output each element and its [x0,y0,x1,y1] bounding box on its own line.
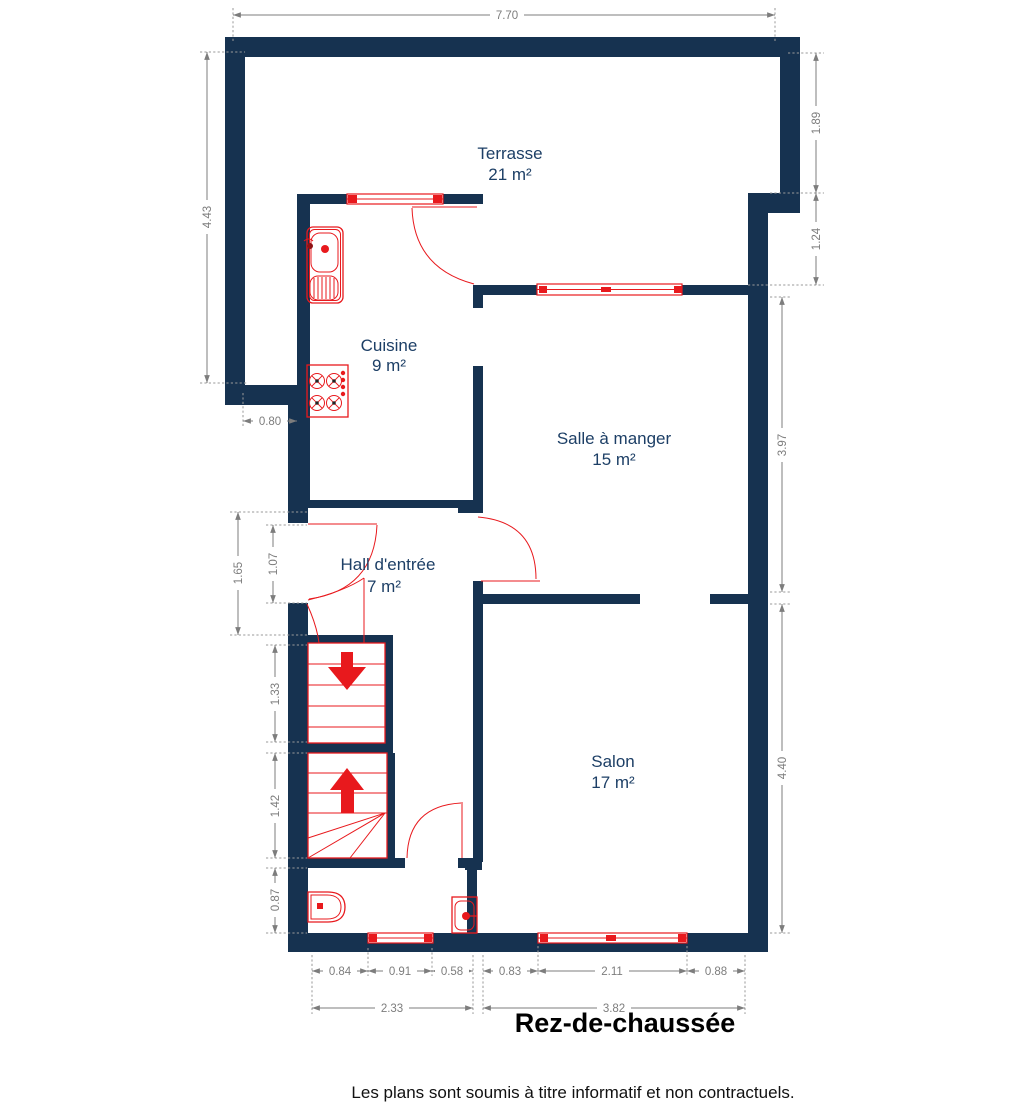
salon-window [538,933,687,943]
winder-step [308,813,385,858]
winder-step [308,813,385,838]
disclaimer-text: Les plans sont soumis à titre informatif… [351,1083,794,1102]
wall-segment [288,603,308,952]
room-label-hall: Hall d'entrée [341,555,436,574]
room-label-salon: Salon [591,752,634,771]
room-area-salle-a-manger: 15 m² [592,450,636,469]
dim-left-stairs-down: 1.33 [270,683,282,705]
wall-segment [473,285,483,308]
wall-segment [288,743,393,753]
wall-segment [473,594,483,862]
wall-segment [288,635,393,643]
floor-plan-page: 7.70 1.89 1.24 3.97 4.40 4.43 0.80 1.65 … [0,0,1024,1104]
dim-bottom-salon-left: 0.83 [499,966,521,978]
kitchen-sink-icon [304,227,343,303]
room-area-salon: 17 m² [591,773,635,792]
room-label-terrasse: Terrasse [477,144,542,163]
wall-segment [780,37,800,213]
wall-segment [473,366,483,503]
door-arc [407,803,461,858]
kitchen-window [347,194,443,204]
wall-segment [385,635,393,743]
dim-bottom-total-left: 2.33 [381,1003,403,1015]
doors [307,207,540,858]
door-arc [308,578,364,600]
room-label-salle-a-manger: Salle à manger [557,429,672,448]
floor-title: Rez-de-chaussée [515,1008,736,1038]
wall-segment [387,753,395,858]
dim-left-wc: 0.87 [270,889,282,911]
wall-segment [288,858,405,868]
dim-bottom-wc-right: 0.58 [441,966,463,978]
dim-left-stairs-up: 1.42 [270,795,282,817]
dim-bottom-salon-right: 0.88 [705,966,727,978]
winder-step [350,813,385,858]
wall-segment [288,933,768,952]
wall-segment [225,37,245,405]
wall-segment [473,594,640,604]
dim-left-hall: 1.65 [233,562,245,584]
wall-segment [710,594,748,604]
wall-segment [748,193,768,952]
wc-window [368,933,433,943]
room-area-hall: 7 m² [367,577,401,596]
dim-bottom-salon-window: 2.11 [601,966,623,978]
floor-plan-drawing: 7.70 1.89 1.24 3.97 4.40 4.43 0.80 1.65 … [0,0,1024,1104]
stove-icon [307,365,348,417]
dim-bottom-wc-window: 0.91 [389,966,411,978]
room-area-terrasse: 21 m² [488,165,532,184]
door-arc [478,517,536,579]
wall-segment [288,500,483,508]
dim-left-terrace: 4.43 [202,206,214,228]
wall-segment [225,37,800,57]
dim-right-upper: 1.89 [811,112,823,134]
dim-right-salon: 4.40 [777,757,789,779]
room-label-cuisine: Cuisine [361,336,418,355]
terrace-dining-door [412,207,477,284]
room-area-cuisine: 9 m² [372,356,406,375]
hall-dining-door [478,517,540,581]
dim-top-width: 7.70 [496,10,518,22]
door-arc [412,208,474,284]
dim-left-front-door: 1.07 [268,553,280,575]
wall-segment [458,858,482,868]
toilet-icon [308,892,345,922]
dim-right-dining: 3.97 [777,434,789,456]
dim-kitchen-offset: 0.80 [259,416,281,428]
dim-right-step: 1.24 [811,227,823,250]
stairs-up-arrow-icon [330,768,364,813]
stairs-down-arrow-icon [328,652,366,690]
dining-window [537,284,682,295]
wc-door [407,802,462,858]
dim-bottom-wc-left: 0.84 [329,966,352,978]
